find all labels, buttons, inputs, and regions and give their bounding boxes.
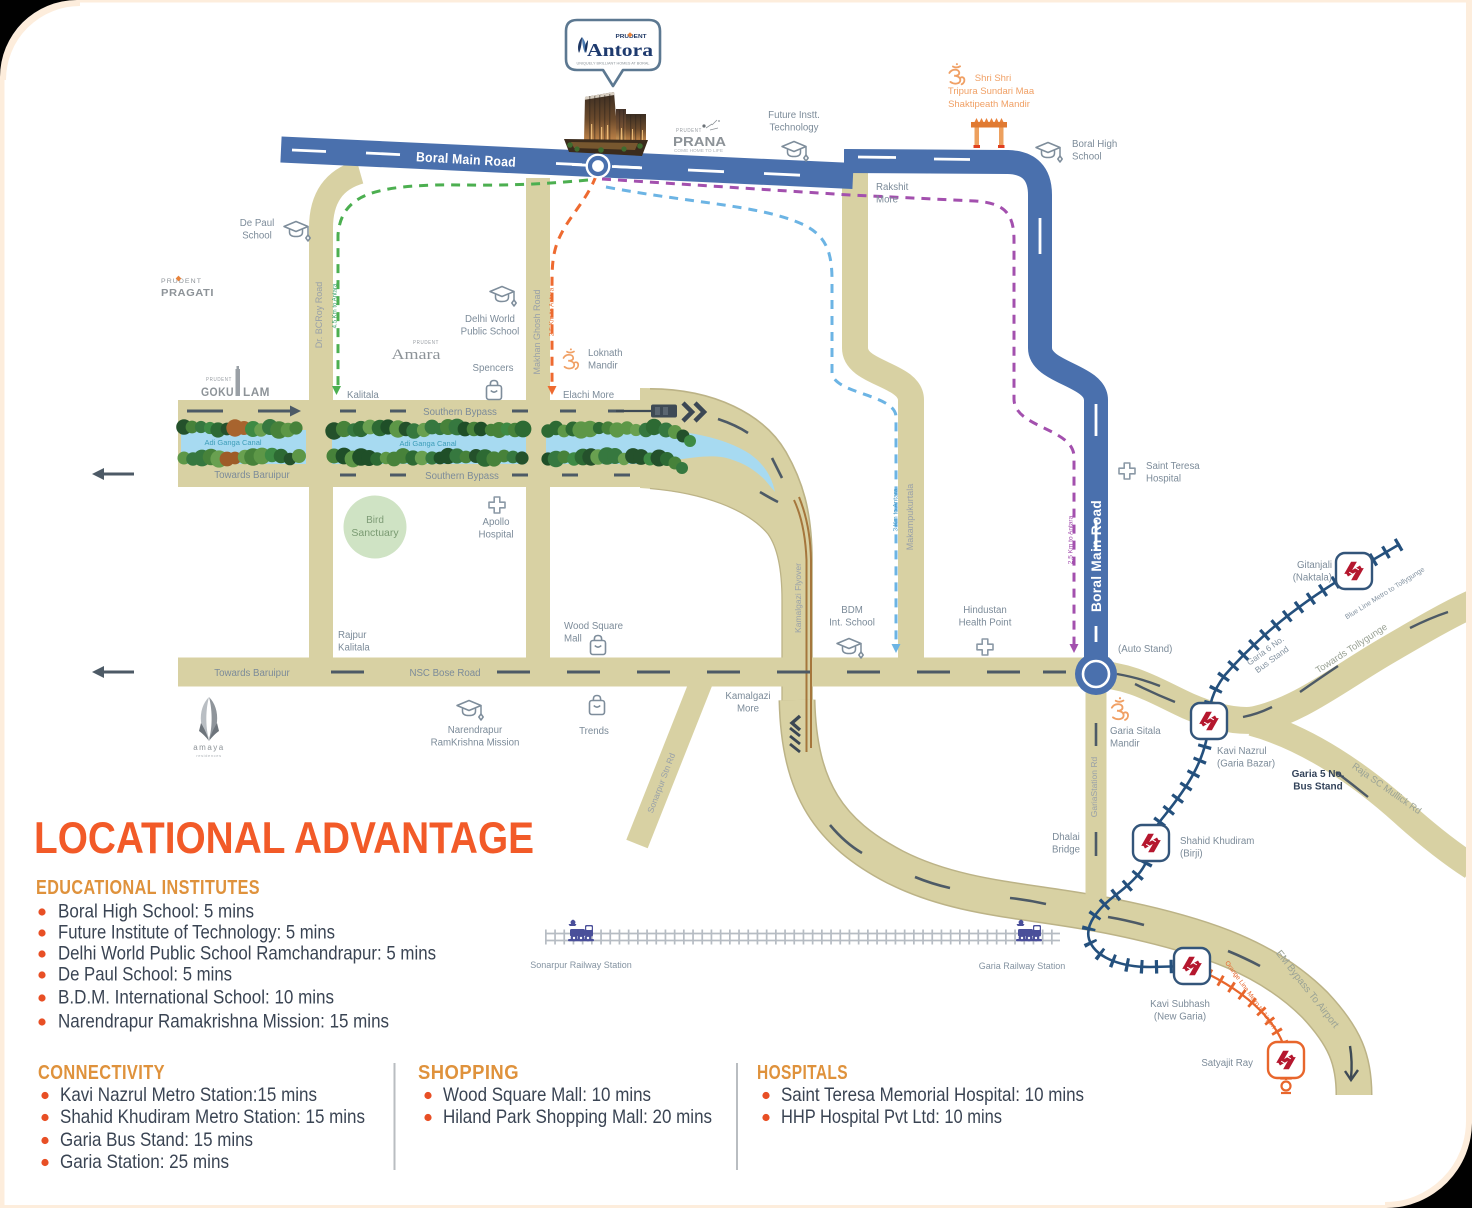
svg-text:Towards Baruipur: Towards Baruipur (214, 668, 290, 679)
svg-text:PRUDENT: PRUDENT (413, 340, 439, 346)
svg-text:School: School (1072, 151, 1102, 162)
svg-text:Makampukurtala: Makampukurtala (905, 484, 915, 551)
svg-text:HHP Hospital Pvt Ltd: 10 mins: HHP Hospital Pvt Ltd: 10 mins (781, 1106, 1002, 1128)
svg-text:BDM: BDM (841, 605, 863, 616)
svg-text:Narendrapur: Narendrapur (448, 725, 503, 736)
svg-text:More: More (737, 703, 759, 714)
svg-text:Saint Teresa: Saint Teresa (1146, 461, 1200, 472)
svg-text:PRUDENT: PRUDENT (676, 128, 702, 134)
svg-text:Future Institute of Technology: Future Institute of Technology: 5 mins (58, 922, 335, 944)
svg-text:3 Km to Antara: 3 Km to Antara (893, 488, 900, 531)
svg-text:Mandir: Mandir (588, 360, 618, 371)
svg-text:4.5 Km to Antara: 4.5 Km to Antara (333, 283, 339, 328)
svg-text:Kamalgazi Flyover: Kamalgazi Flyover (793, 563, 803, 633)
svg-text:De Paul: De Paul (240, 218, 274, 229)
svg-text:School: School (242, 230, 272, 241)
svg-text:Shahid Khudiram: Shahid Khudiram (1180, 836, 1254, 847)
svg-text:Future Instt.: Future Instt. (768, 110, 820, 121)
svg-text:Amara: Amara (392, 347, 441, 363)
svg-text:residences: residences (196, 753, 221, 758)
svg-text:Sonarpur Railway Station: Sonarpur Railway Station (530, 960, 632, 970)
svg-text:Kavi Subhash: Kavi Subhash (1150, 999, 1210, 1010)
svg-text:(Birji): (Birji) (1180, 848, 1203, 859)
svg-text:2.5 Km to Antara: 2.5 Km to Antara (1068, 515, 1075, 564)
svg-text:LAM: LAM (243, 385, 270, 399)
svg-text:Garia 5 No.: Garia 5 No. (1292, 769, 1345, 780)
svg-text:Adi Ganga Canal: Adi Ganga Canal (204, 438, 261, 447)
svg-text:Adi Ganga Canal: Adi Ganga Canal (399, 439, 456, 448)
svg-text:(Auto Stand): (Auto Stand) (1118, 644, 1172, 655)
svg-text:Boral Main Road: Boral Main Road (1089, 500, 1104, 612)
svg-text:Delhi World Public School Ramc: Delhi World Public School Ramchandrapur:… (58, 943, 436, 965)
svg-text:Saint Teresa Memorial Hospital: Saint Teresa Memorial Hospital: 10 mins (781, 1084, 1084, 1106)
svg-text:Apollo: Apollo (483, 517, 510, 528)
svg-text:(New Garia): (New Garia) (1154, 1011, 1206, 1022)
svg-text:GOKU: GOKU (201, 385, 234, 399)
svg-text:Trends: Trends (579, 726, 609, 737)
svg-text:CONNECTIVITY: CONNECTIVITY (38, 1062, 165, 1084)
svg-text:Mall: Mall (564, 633, 582, 644)
svg-text:B.D.M. International School: 1: B.D.M. International School: 10 mins (58, 987, 334, 1009)
svg-text:Dhalai: Dhalai (1052, 832, 1079, 843)
svg-text:Shri Shri: Shri Shri (975, 73, 1011, 84)
svg-text:NSC Bose Road: NSC Bose Road (409, 668, 480, 679)
svg-text:UNIQUELY BRILLIANT HOMES AT BO: UNIQUELY BRILLIANT HOMES AT BORAL (577, 62, 650, 66)
svg-text:Hindustan: Hindustan (963, 605, 1007, 616)
svg-text:Kamalgazi: Kamalgazi (725, 691, 770, 702)
svg-text:Loknath: Loknath (588, 348, 622, 359)
svg-text:SHOPPING: SHOPPING (418, 1062, 519, 1084)
svg-text:Int. School: Int. School (829, 617, 875, 628)
svg-text:EDUCATIONAL INSTITUTES: EDUCATIONAL INSTITUTES (36, 877, 260, 899)
svg-text:Southern Bypass: Southern Bypass (425, 471, 499, 482)
svg-text:Garia Railway Station: Garia Railway Station (979, 961, 1066, 971)
svg-text:Satyajit Ray: Satyajit Ray (1201, 1058, 1253, 1069)
svg-text:Narendrapur Ramakrishna Missio: Narendrapur Ramakrishna Mission: 15 mins (58, 1011, 389, 1033)
svg-text:Bus Stand: Bus Stand (1293, 781, 1342, 792)
svg-text:amaya: amaya (193, 743, 225, 752)
svg-text:Boral High School: 5 mins: Boral High School: 5 mins (58, 901, 254, 923)
svg-text:GariaStation Rd: GariaStation Rd (1089, 756, 1099, 817)
svg-text:Dr. BCRoy Road: Dr. BCRoy Road (314, 282, 324, 349)
svg-text:Mandir: Mandir (1110, 738, 1140, 749)
svg-text:Antora: Antora (587, 40, 653, 60)
svg-text:RamKrishna Mission: RamKrishna Mission (431, 737, 520, 748)
svg-text:PRAGATI: PRAGATI (161, 287, 214, 299)
svg-text:Kavi Nazrul Metro Station:15 m: Kavi Nazrul Metro Station:15 mins (60, 1084, 317, 1106)
svg-text:Kalitala: Kalitala (338, 642, 370, 653)
svg-text:(Garia Bazar): (Garia Bazar) (1217, 758, 1275, 769)
svg-text:Kalitala: Kalitala (347, 390, 379, 401)
svg-text:De Paul School: 5 mins: De Paul School: 5 mins (58, 964, 232, 986)
svg-text:Rajpur: Rajpur (338, 630, 367, 641)
svg-text:Technology: Technology (769, 122, 818, 133)
svg-text:Wood Square: Wood Square (564, 621, 623, 632)
svg-text:Elachi More: Elachi More (563, 390, 614, 401)
svg-text:Kavi Nazrul: Kavi Nazrul (1217, 746, 1267, 757)
svg-text:PRUDENT: PRUDENT (206, 377, 232, 383)
svg-text:HOSPITALS: HOSPITALS (757, 1062, 848, 1084)
svg-text:Bridge: Bridge (1052, 844, 1080, 855)
svg-text:Spencers: Spencers (473, 363, 514, 374)
svg-text:Bird: Bird (366, 515, 384, 526)
svg-text:Gitanjali: Gitanjali (1297, 560, 1332, 571)
svg-text:Hospital: Hospital (479, 529, 514, 540)
svg-text:Towards Baruipur: Towards Baruipur (214, 470, 290, 481)
svg-text:Hiland Park Shopping Mall: 20: Hiland Park Shopping Mall: 20 mins (443, 1106, 712, 1128)
svg-text:Boral High: Boral High (1072, 139, 1117, 150)
svg-text:Public School: Public School (461, 326, 520, 337)
svg-text:2.5 Km to Antara: 2.5 Km to Antara (549, 287, 556, 336)
svg-text:Southern Bypass: Southern Bypass (423, 407, 497, 418)
svg-text:Delhi World: Delhi World (465, 314, 515, 325)
svg-text:(Naktala): (Naktala) (1293, 572, 1332, 583)
svg-text:Hospital: Hospital (1146, 473, 1181, 484)
svg-text:Garia Sitala: Garia Sitala (1110, 726, 1161, 737)
svg-text:More: More (876, 194, 898, 205)
svg-text:Wood Square Mall: 10 mins: Wood Square Mall: 10 mins (443, 1084, 651, 1106)
svg-text:LOCATIONAL ADVANTAGE: LOCATIONAL ADVANTAGE (34, 814, 534, 863)
svg-text:Rakshit: Rakshit (876, 182, 909, 193)
svg-text:Shaktipeath Mandir: Shaktipeath Mandir (948, 99, 1030, 110)
svg-text:Sanctuary: Sanctuary (351, 527, 399, 539)
svg-text:Makhan Ghosh Road: Makhan Ghosh Road (532, 289, 542, 374)
svg-text:Garia Bus Stand: 15 mins: Garia Bus Stand: 15 mins (60, 1129, 253, 1151)
svg-text:PRUDENT: PRUDENT (161, 278, 202, 285)
svg-text:Tripura Sundari Maa: Tripura Sundari Maa (948, 86, 1035, 97)
svg-text:Health Point: Health Point (959, 617, 1012, 628)
svg-text:COME HOME TO LIFE: COME HOME TO LIFE (674, 148, 723, 153)
svg-text:PRANA: PRANA (673, 135, 726, 149)
svg-text:Shahid Khudiram Metro Station:: Shahid Khudiram Metro Station: 15 mins (60, 1106, 365, 1128)
svg-text:Garia Station: 25 mins: Garia Station: 25 mins (60, 1151, 229, 1173)
